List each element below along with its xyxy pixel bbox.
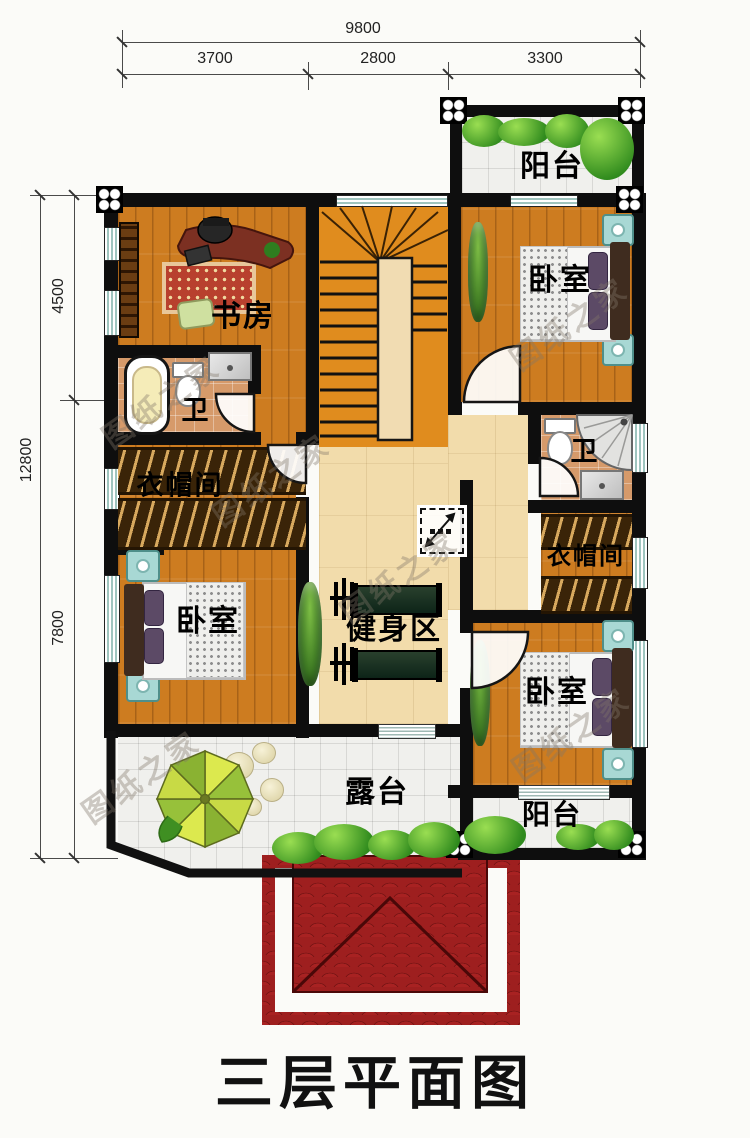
door-arc	[472, 632, 528, 688]
chair-back	[203, 218, 229, 226]
label-bedroom-top-right: 卧室	[528, 266, 592, 296]
floor-plan-canvas: 9800 3700 2800 3300 12800 4500 7800	[0, 0, 750, 1138]
stair-treads-left	[320, 262, 377, 436]
label-bath-left: 卫	[182, 398, 211, 425]
page-title: 三层平面图	[215, 1036, 535, 1120]
door-arc	[216, 394, 254, 432]
desk-plant-icon	[264, 242, 280, 258]
stair-landing	[378, 258, 412, 440]
label-balcony-bottom: 阳台	[522, 801, 582, 829]
stair-winders	[322, 206, 448, 262]
label-terrace: 露台	[345, 778, 409, 808]
stair-treads-right	[412, 266, 447, 330]
hatch-arrow	[426, 514, 454, 546]
plan-overlay	[0, 0, 750, 1138]
roof-hip-lines	[294, 898, 486, 991]
label-closet-left: 衣帽间	[137, 473, 224, 500]
label-bedroom-bottom-right: 卧室	[525, 678, 589, 708]
label-closet-right: 衣帽间	[547, 545, 625, 569]
label-bath-right: 卫	[571, 439, 600, 466]
label-gym: 健身区	[346, 615, 442, 645]
umbrella-icon	[157, 751, 253, 847]
label-study: 书房	[211, 302, 275, 332]
desk-icon	[178, 217, 293, 268]
door-arc	[464, 346, 520, 402]
label-bedroom-bottom-left: 卧室	[176, 607, 240, 637]
door-arc	[268, 445, 306, 483]
label-balcony-top: 阳台	[520, 152, 584, 182]
